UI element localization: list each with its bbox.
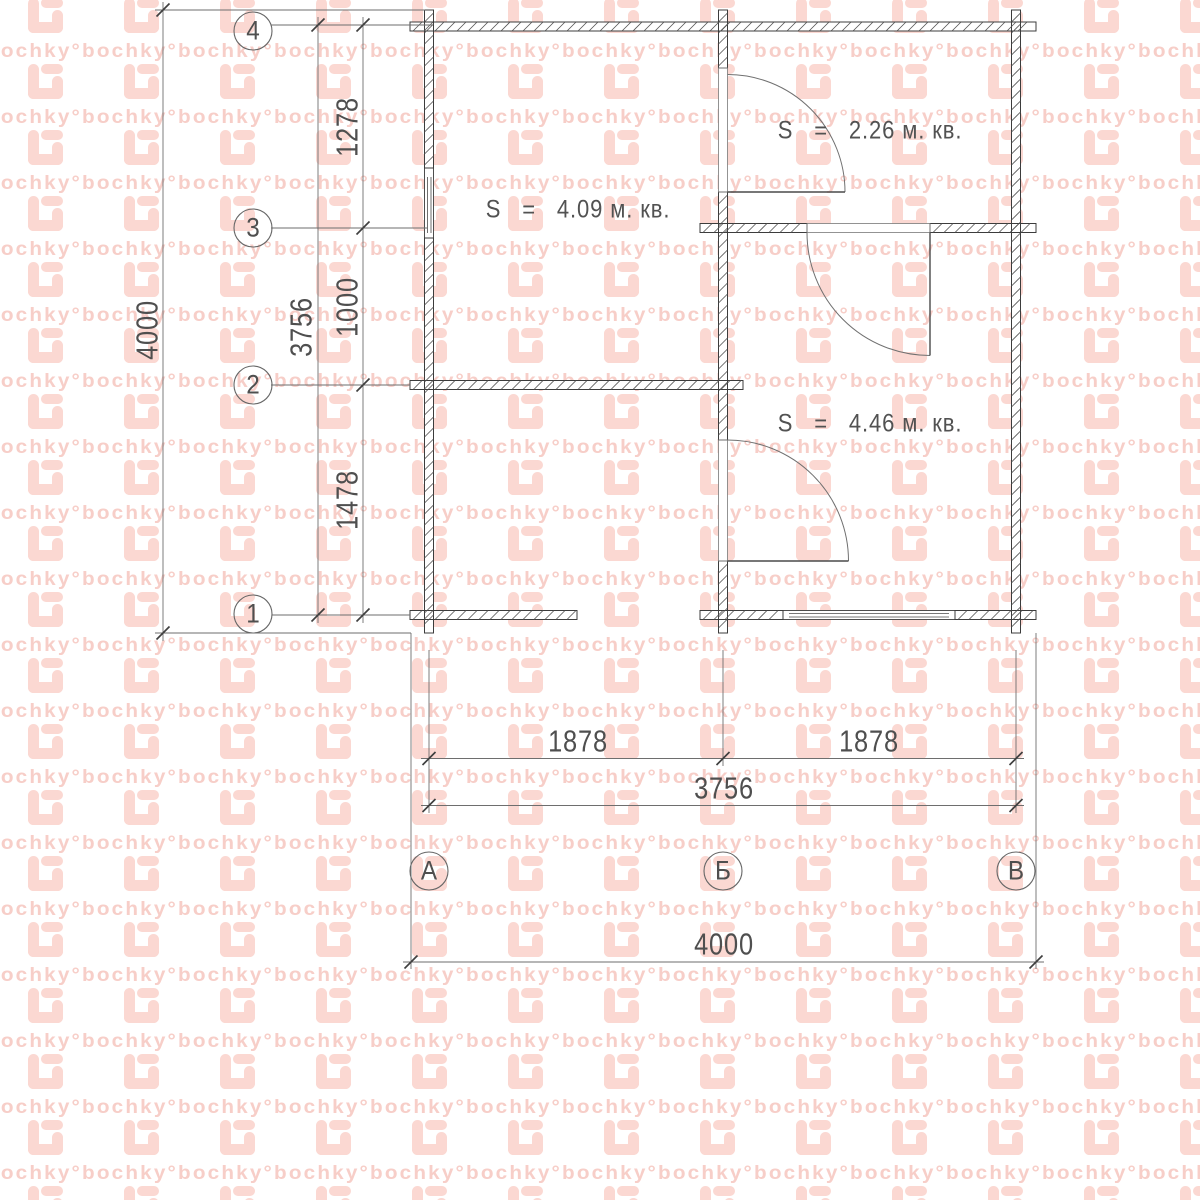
floor-plan-page: { "watermark": { "word": "bochky°" }, "c… (0, 0, 1200, 1200)
dim-label-4000-left: 4000 (132, 300, 163, 360)
room-area-label-446: S = 4.46 м. кв. (778, 410, 963, 439)
dim-label-4000-bottom: 4000 (694, 929, 754, 960)
door-symbols (728, 75, 931, 562)
dim-label-3756-left: 3756 (286, 297, 317, 357)
axis-circle-label-2: 2 (246, 372, 260, 399)
axis-circle-label-b: Б (715, 858, 731, 885)
dim-label-1000: 1000 (332, 277, 363, 337)
dim-label-1278: 1278 (332, 97, 363, 157)
dim-label-1878-a: 1878 (548, 726, 608, 757)
axis-circle-label-4: 4 (246, 18, 260, 45)
axis-circle-label-1: 1 (246, 601, 260, 628)
axis-circle-label-v: В (1008, 858, 1024, 885)
room-area-label-409: S = 4.09 м. кв. (486, 196, 671, 225)
dim-label-1478: 1478 (332, 470, 363, 530)
dim-label-1878-b: 1878 (839, 726, 899, 757)
room-area-label-226: S = 2.26 м. кв. (778, 117, 963, 146)
dimension-lines (155, 2, 1044, 969)
axis-circle-label-a: А (421, 858, 437, 885)
window-symbols (425, 168, 956, 620)
floor-plan-drawing (0, 0, 1200, 1200)
axis-circle-label-3: 3 (246, 215, 260, 242)
dim-label-3756-bottom: 3756 (694, 773, 754, 804)
wall-fills (410, 10, 1036, 633)
dimension-ticks (157, 4, 1043, 969)
